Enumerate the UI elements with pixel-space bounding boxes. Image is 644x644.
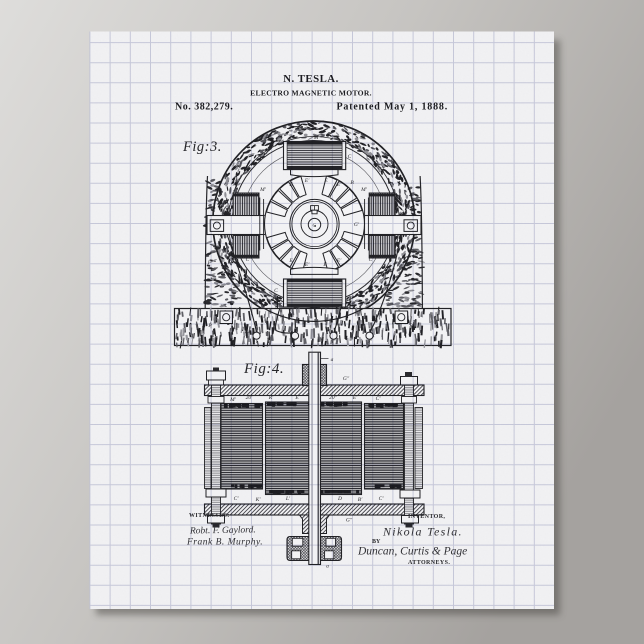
- svg-text:M′: M′: [229, 397, 237, 403]
- svg-text:R′: R′: [268, 395, 274, 401]
- svg-text:Duncan, Curtis & Page: Duncan, Curtis & Page: [357, 546, 467, 558]
- svg-text:C: C: [348, 154, 352, 160]
- svg-text:E′: E′: [304, 262, 310, 268]
- svg-text:Fig:4.: Fig:4.: [243, 361, 284, 377]
- svg-text:20″: 20″: [329, 395, 338, 401]
- svg-text:C′: C′: [246, 257, 252, 263]
- svg-text:M′: M′: [360, 187, 368, 193]
- svg-text:K′: K′: [255, 497, 262, 503]
- svg-text:WITNESSES:: WITNESSES:: [189, 513, 230, 519]
- svg-text:G″: G″: [346, 518, 353, 524]
- svg-text:20′: 20′: [246, 395, 254, 401]
- svg-text:L′: L′: [285, 496, 291, 502]
- svg-text:E′: E′: [336, 258, 342, 264]
- svg-text:G′: G′: [354, 222, 360, 228]
- svg-text:F′: F′: [207, 260, 213, 266]
- svg-text:Nikola Tesla.: Nikola Tesla.: [382, 525, 463, 539]
- svg-text:M: M: [313, 135, 319, 141]
- svg-text:ELECTRO MAGNETIC MOTOR.: ELECTRO MAGNETIC MOTOR.: [250, 89, 372, 98]
- svg-text:E: E: [294, 395, 299, 401]
- svg-text:C: C: [274, 288, 278, 294]
- svg-text:B′: B′: [358, 497, 363, 503]
- svg-text:INVENTOR,: INVENTOR,: [408, 514, 445, 520]
- svg-text:C′: C′: [234, 496, 240, 502]
- svg-text:Robt. F. Gaylord.: Robt. F. Gaylord.: [189, 525, 256, 536]
- svg-text:G″: G″: [343, 376, 350, 382]
- svg-text:a: a: [326, 564, 329, 570]
- svg-text:D: D: [337, 496, 342, 502]
- svg-text:C′: C′: [376, 396, 382, 402]
- svg-text:C′: C′: [369, 257, 375, 263]
- svg-text:E: E: [288, 258, 293, 264]
- svg-text:E: E: [322, 262, 327, 268]
- svg-text:BY: BY: [372, 539, 381, 545]
- svg-text:M′: M′: [259, 187, 267, 193]
- svg-text:Fig:3.: Fig:3.: [182, 139, 222, 155]
- svg-text:C′: C′: [379, 496, 385, 502]
